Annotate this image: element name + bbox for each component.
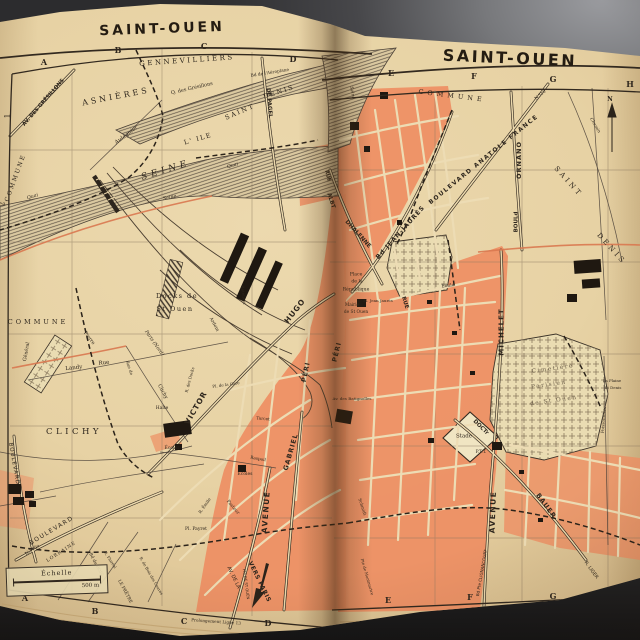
map-label: Seine xyxy=(348,86,355,99)
map-label: St Ouen xyxy=(156,306,193,313)
map-label: de la xyxy=(351,281,362,286)
map-label: COMMUNE xyxy=(8,319,69,326)
map-label: Docks de xyxy=(156,293,198,300)
map-label: St Denis xyxy=(605,386,622,390)
grid-letter: G xyxy=(550,592,557,600)
map-label: Halte xyxy=(156,407,169,412)
grid-letter: D xyxy=(290,55,297,63)
map-label: de St Ouen xyxy=(344,311,368,315)
map-label: Stade xyxy=(456,434,472,440)
map-label: P.T.T. xyxy=(476,451,487,455)
map-label: MICHELET xyxy=(499,308,506,355)
grid-letter: C xyxy=(181,617,187,625)
map-label: BOULd xyxy=(514,212,520,233)
map-label: Mairie xyxy=(345,304,359,308)
photo-of-atlas: SAINT-OUEN SAINT-OUEN ABCDABCD12GENNEVIL… xyxy=(0,0,640,640)
grid-letter: E xyxy=(388,69,394,77)
grid-letter: G xyxy=(550,75,557,83)
map-label: Écoles xyxy=(238,473,253,478)
grid-letter: D xyxy=(265,619,272,627)
map-label: Place xyxy=(350,274,363,279)
grid-letter: C xyxy=(201,42,207,50)
scale-title: Échelle xyxy=(7,567,107,578)
grid-letter: F xyxy=(467,593,473,601)
map-label: Écoles xyxy=(165,447,180,452)
grid-letter: H xyxy=(628,587,636,595)
map-label: Pl. Payret xyxy=(185,528,207,533)
grid-letter: H xyxy=(626,80,634,88)
map-label: Pl. Jean Jaurès xyxy=(363,299,393,303)
grid-letter: B xyxy=(92,607,99,615)
map-label: DE PAGEL xyxy=(264,88,272,118)
map-label: République xyxy=(343,289,370,294)
scale-distance: 500 m xyxy=(7,583,99,592)
open-book: SAINT-OUEN SAINT-OUEN ABCDABCD12GENNEVIL… xyxy=(0,0,640,640)
map-label: CLICHY xyxy=(46,428,102,437)
grid-letter: F xyxy=(471,72,477,80)
map-label: AVENUE xyxy=(489,491,498,534)
grid-letter: A xyxy=(41,58,47,66)
grid-letter: B xyxy=(115,46,122,54)
map-label: Rue xyxy=(98,361,109,368)
north-label: N xyxy=(607,97,612,103)
map-label: ORNANO xyxy=(516,141,523,179)
north-arrow-icon xyxy=(608,104,616,152)
grid-letter: E xyxy=(385,596,391,604)
map-label: Av. des Batignolles xyxy=(333,397,372,401)
grid-number: 1 xyxy=(5,114,12,118)
grid-number: 2 xyxy=(0,202,7,206)
map-label: Bateliers xyxy=(240,285,246,304)
map-label: La Plaine xyxy=(603,379,621,383)
scale-box: Échelle 500 m xyxy=(6,564,109,597)
